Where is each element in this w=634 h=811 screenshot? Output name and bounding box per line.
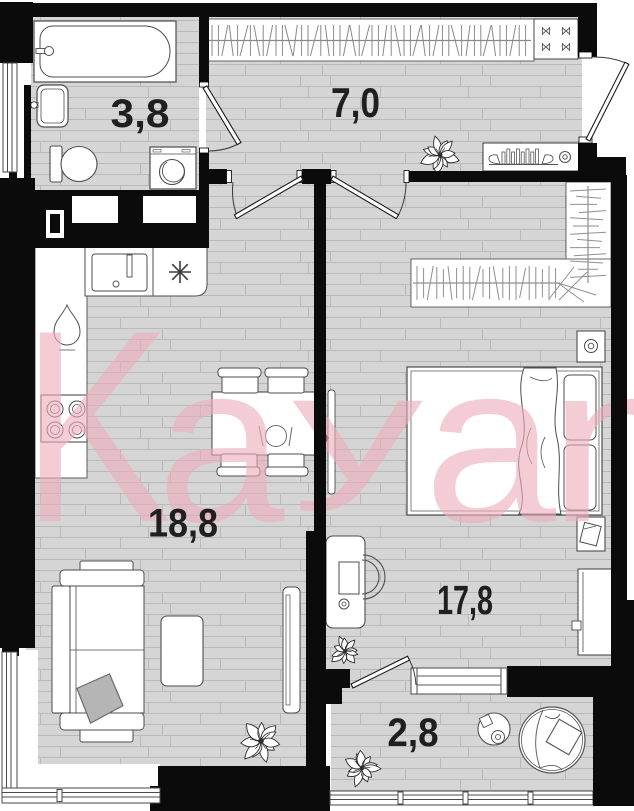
svg-text:a: a: [424, 317, 557, 570]
svg-text:y: y: [292, 345, 423, 513]
svg-text:3,8: 3,8: [111, 91, 170, 136]
svg-text:7,0: 7,0: [331, 80, 380, 127]
svg-text:18,8: 18,8: [148, 502, 218, 546]
svg-text:2,8: 2,8: [387, 711, 438, 756]
svg-text:17,8: 17,8: [437, 578, 493, 623]
